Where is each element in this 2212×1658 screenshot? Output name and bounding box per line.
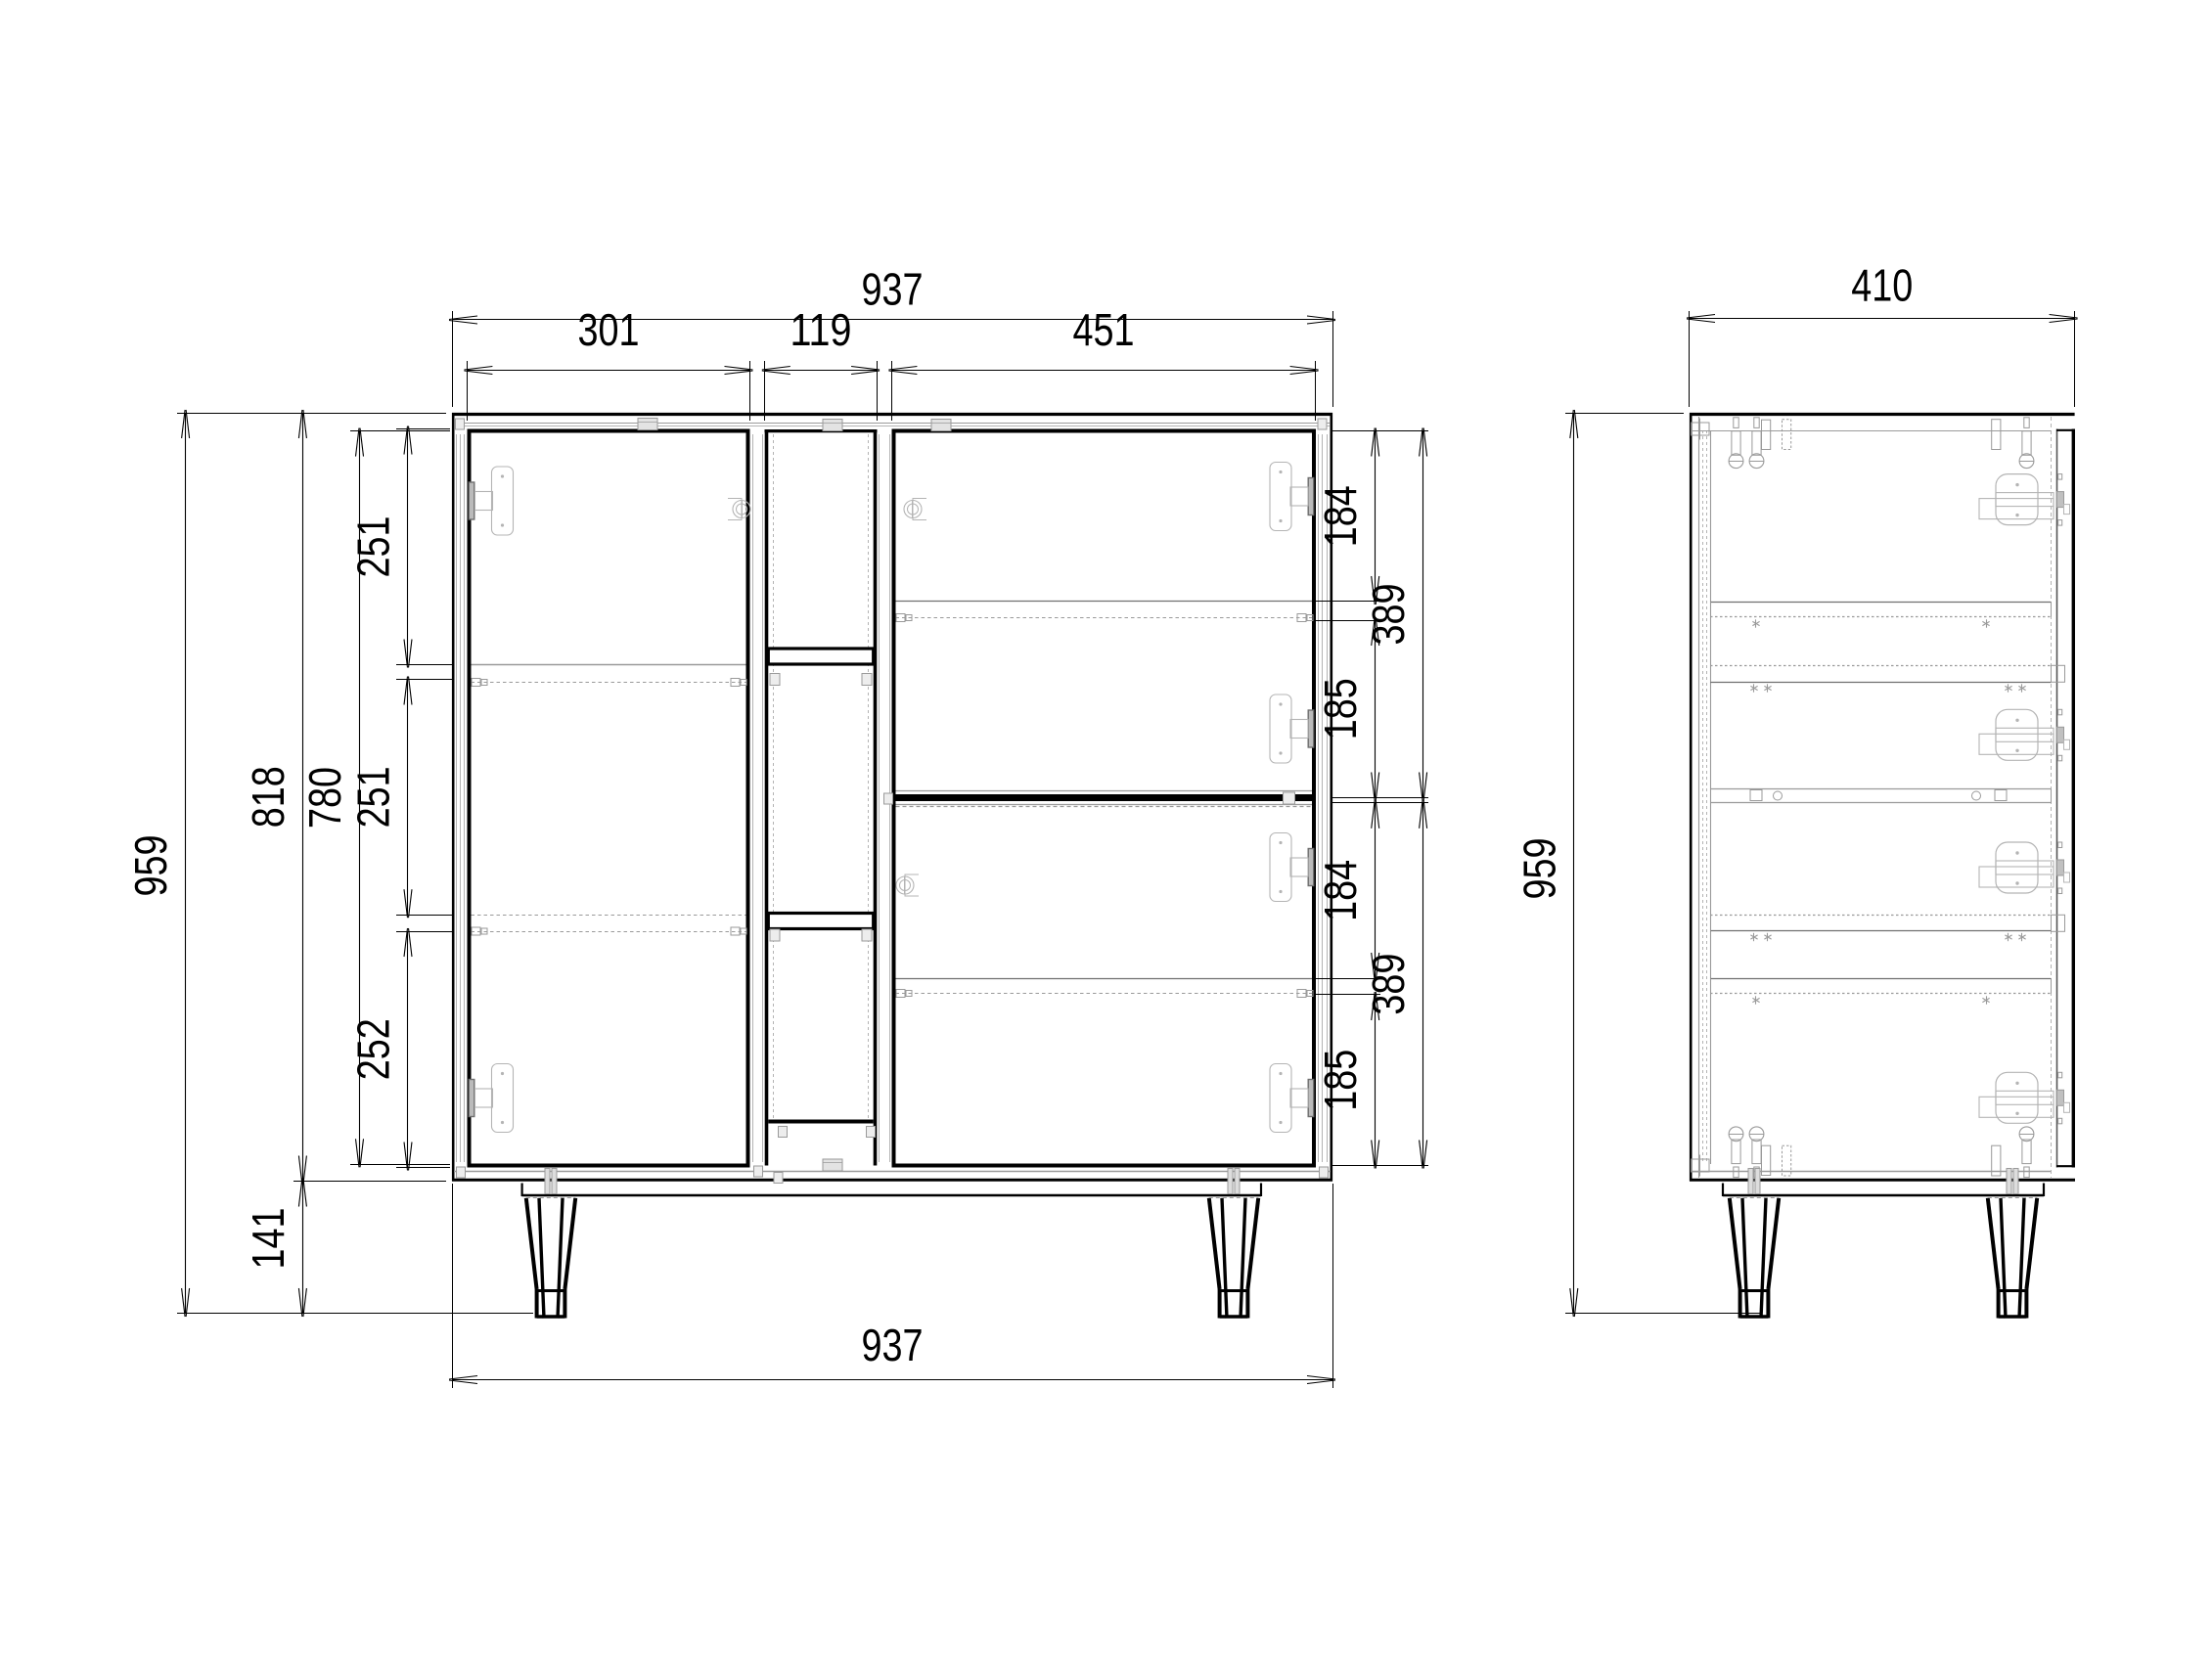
svg-text:185: 185 [1315, 1050, 1366, 1111]
svg-text:451: 451 [1073, 304, 1135, 355]
svg-text:185: 185 [1315, 678, 1366, 739]
svg-text:251: 251 [348, 516, 399, 578]
svg-text:818: 818 [243, 766, 293, 828]
svg-text:184: 184 [1315, 860, 1366, 921]
svg-text:780: 780 [299, 767, 350, 829]
svg-text:959: 959 [125, 835, 176, 897]
svg-text:251: 251 [348, 766, 399, 828]
svg-text:301: 301 [578, 304, 640, 355]
svg-text:141: 141 [243, 1208, 293, 1270]
svg-text:410: 410 [1851, 260, 1913, 311]
svg-text:184: 184 [1315, 485, 1366, 547]
svg-text:389: 389 [1363, 954, 1414, 1015]
svg-text:937: 937 [862, 1320, 924, 1370]
svg-text:389: 389 [1363, 584, 1414, 646]
svg-text:119: 119 [790, 304, 852, 355]
svg-text:959: 959 [1513, 838, 1564, 900]
svg-text:937: 937 [862, 264, 924, 315]
svg-text:252: 252 [348, 1018, 399, 1080]
